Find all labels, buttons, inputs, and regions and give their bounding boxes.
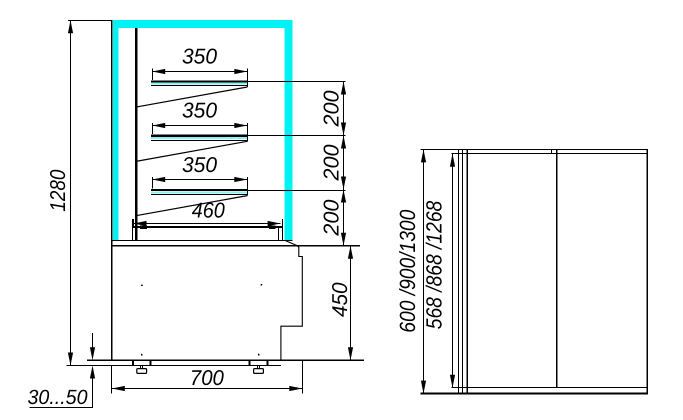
svg-text:200: 200 xyxy=(320,200,344,237)
svg-text:1280: 1280 xyxy=(46,170,70,212)
svg-text:350: 350 xyxy=(182,153,217,177)
svg-text:200: 200 xyxy=(320,144,344,181)
svg-text:700: 700 xyxy=(190,366,224,390)
svg-text:600 /900/1300: 600 /900/1300 xyxy=(395,209,420,333)
svg-text:350: 350 xyxy=(182,44,217,68)
svg-text:200: 200 xyxy=(320,90,344,127)
svg-text:450: 450 xyxy=(328,282,352,317)
svg-text:568 /868 /1268: 568 /868 /1268 xyxy=(421,200,446,329)
svg-text:460: 460 xyxy=(192,199,225,223)
svg-text:30...50: 30...50 xyxy=(28,386,89,409)
svg-text:350: 350 xyxy=(182,99,217,123)
